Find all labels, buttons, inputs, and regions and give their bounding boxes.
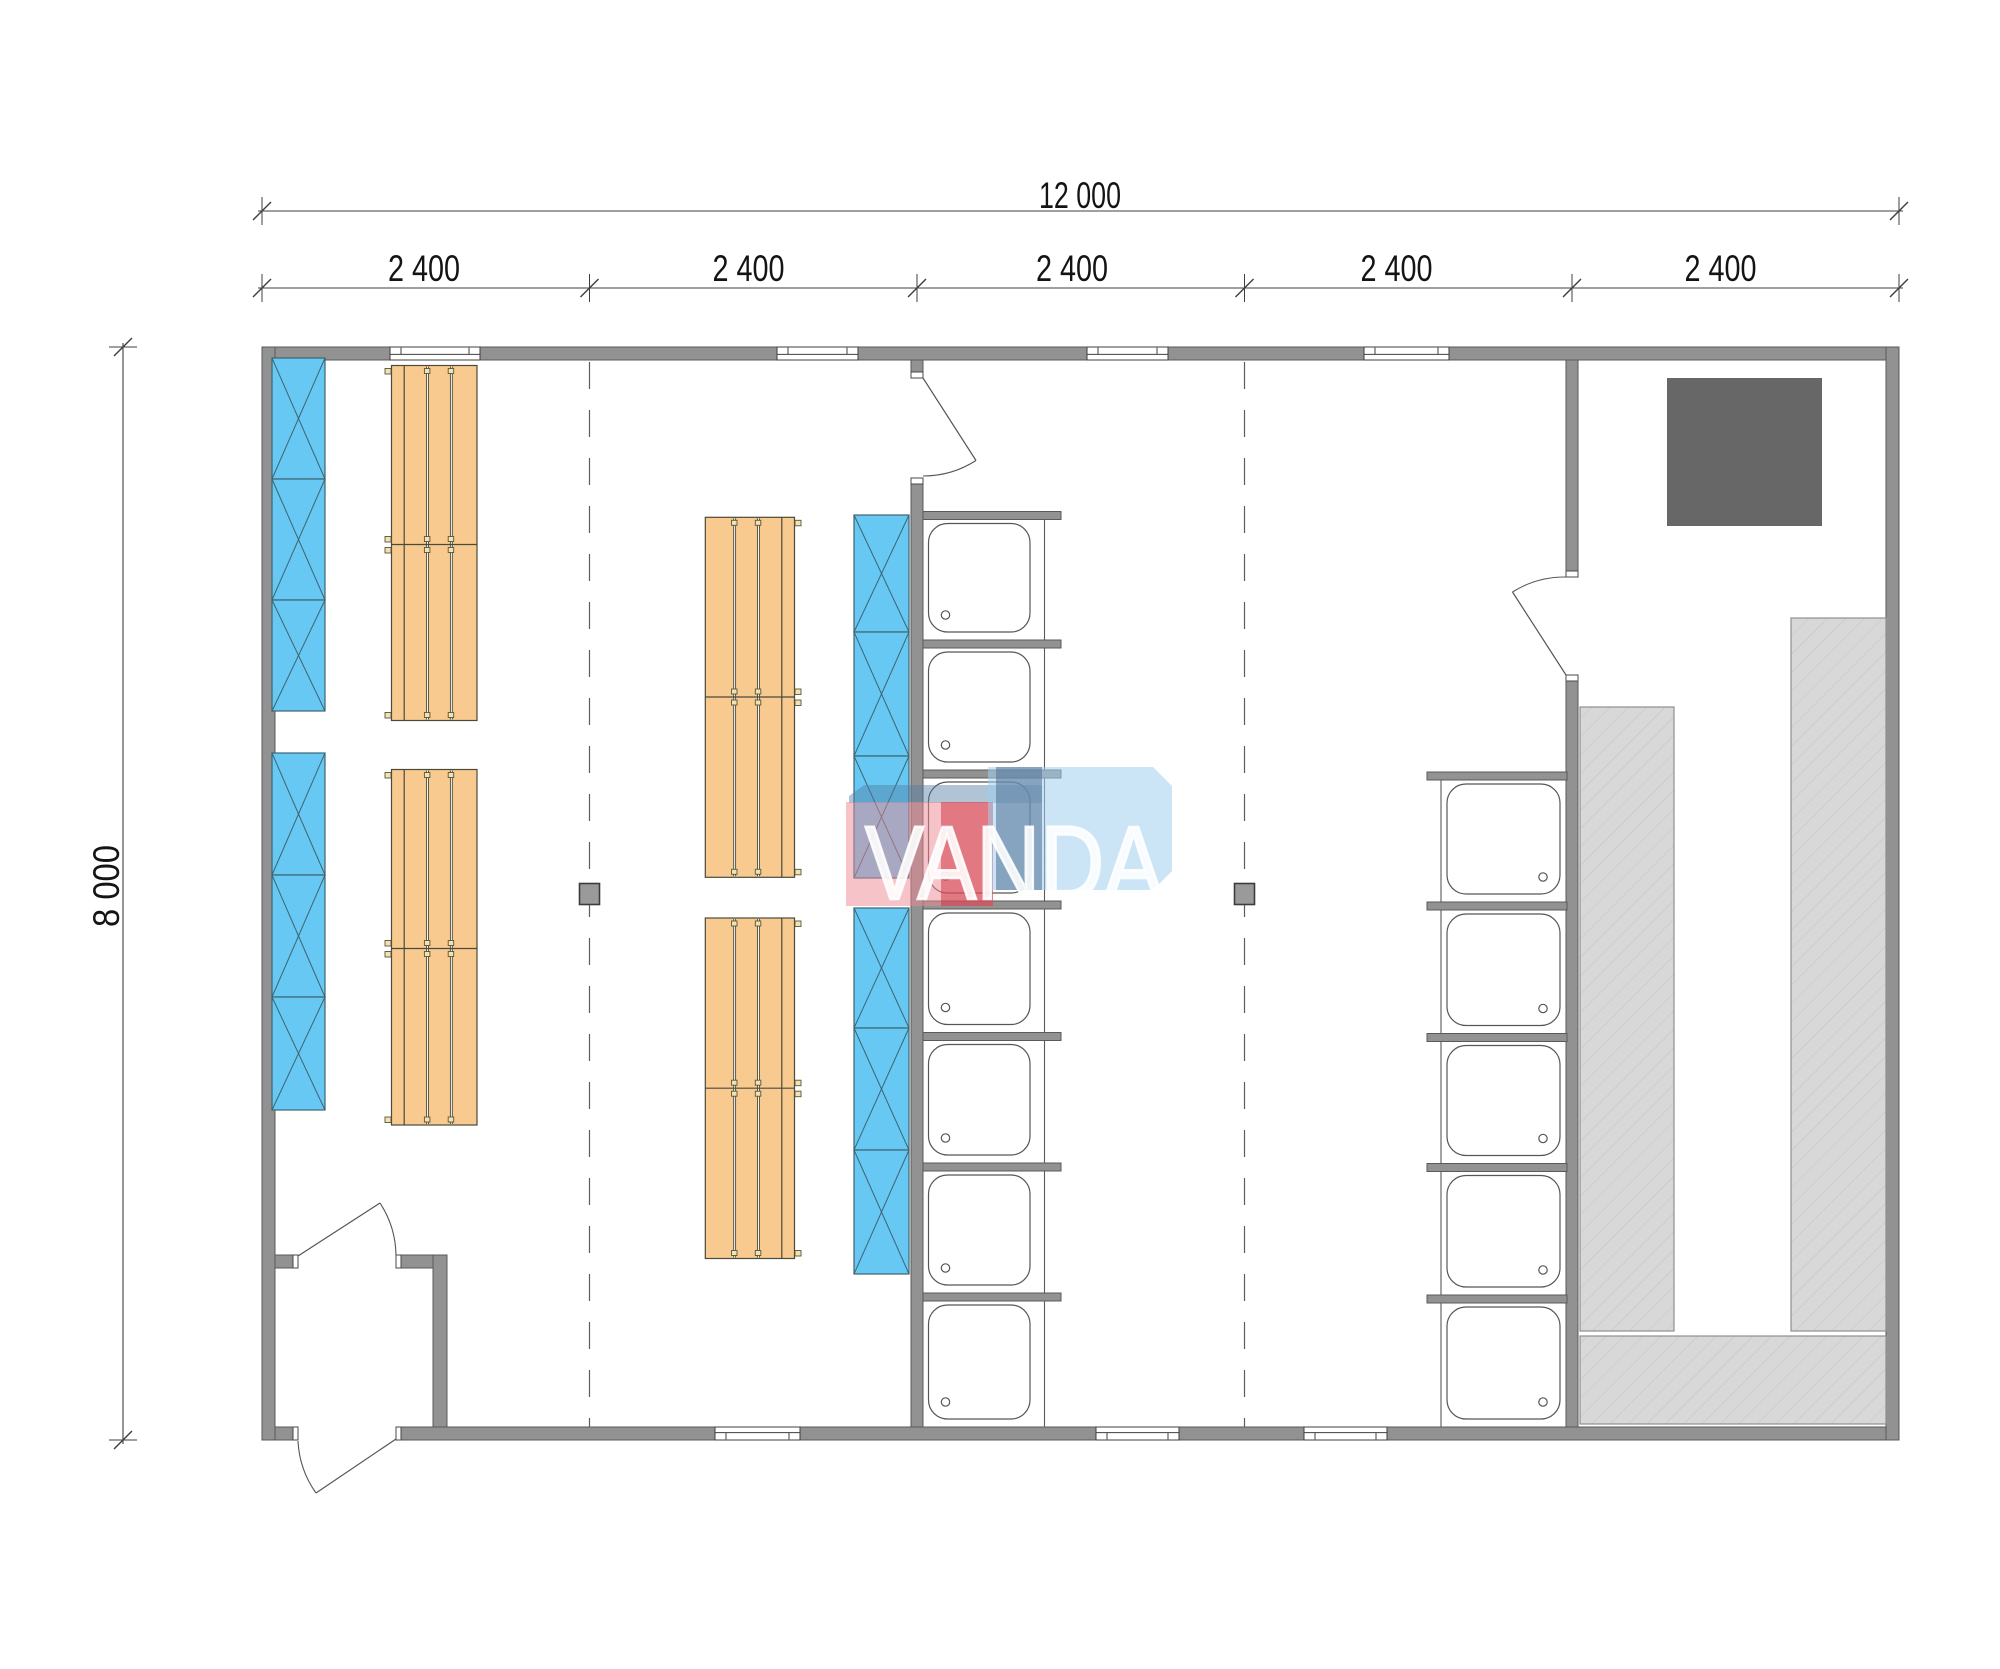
svg-text:8 000: 8 000 [86, 845, 127, 927]
svg-text:2 400: 2 400 [1685, 248, 1757, 289]
svg-text:VANDA: VANDA [865, 805, 1163, 922]
svg-text:2 400: 2 400 [388, 248, 460, 289]
svg-text:2 400: 2 400 [713, 248, 785, 289]
svg-text:2 400: 2 400 [1036, 248, 1108, 289]
svg-text:2 400: 2 400 [1361, 248, 1433, 289]
svg-text:12 000: 12 000 [1039, 175, 1121, 216]
